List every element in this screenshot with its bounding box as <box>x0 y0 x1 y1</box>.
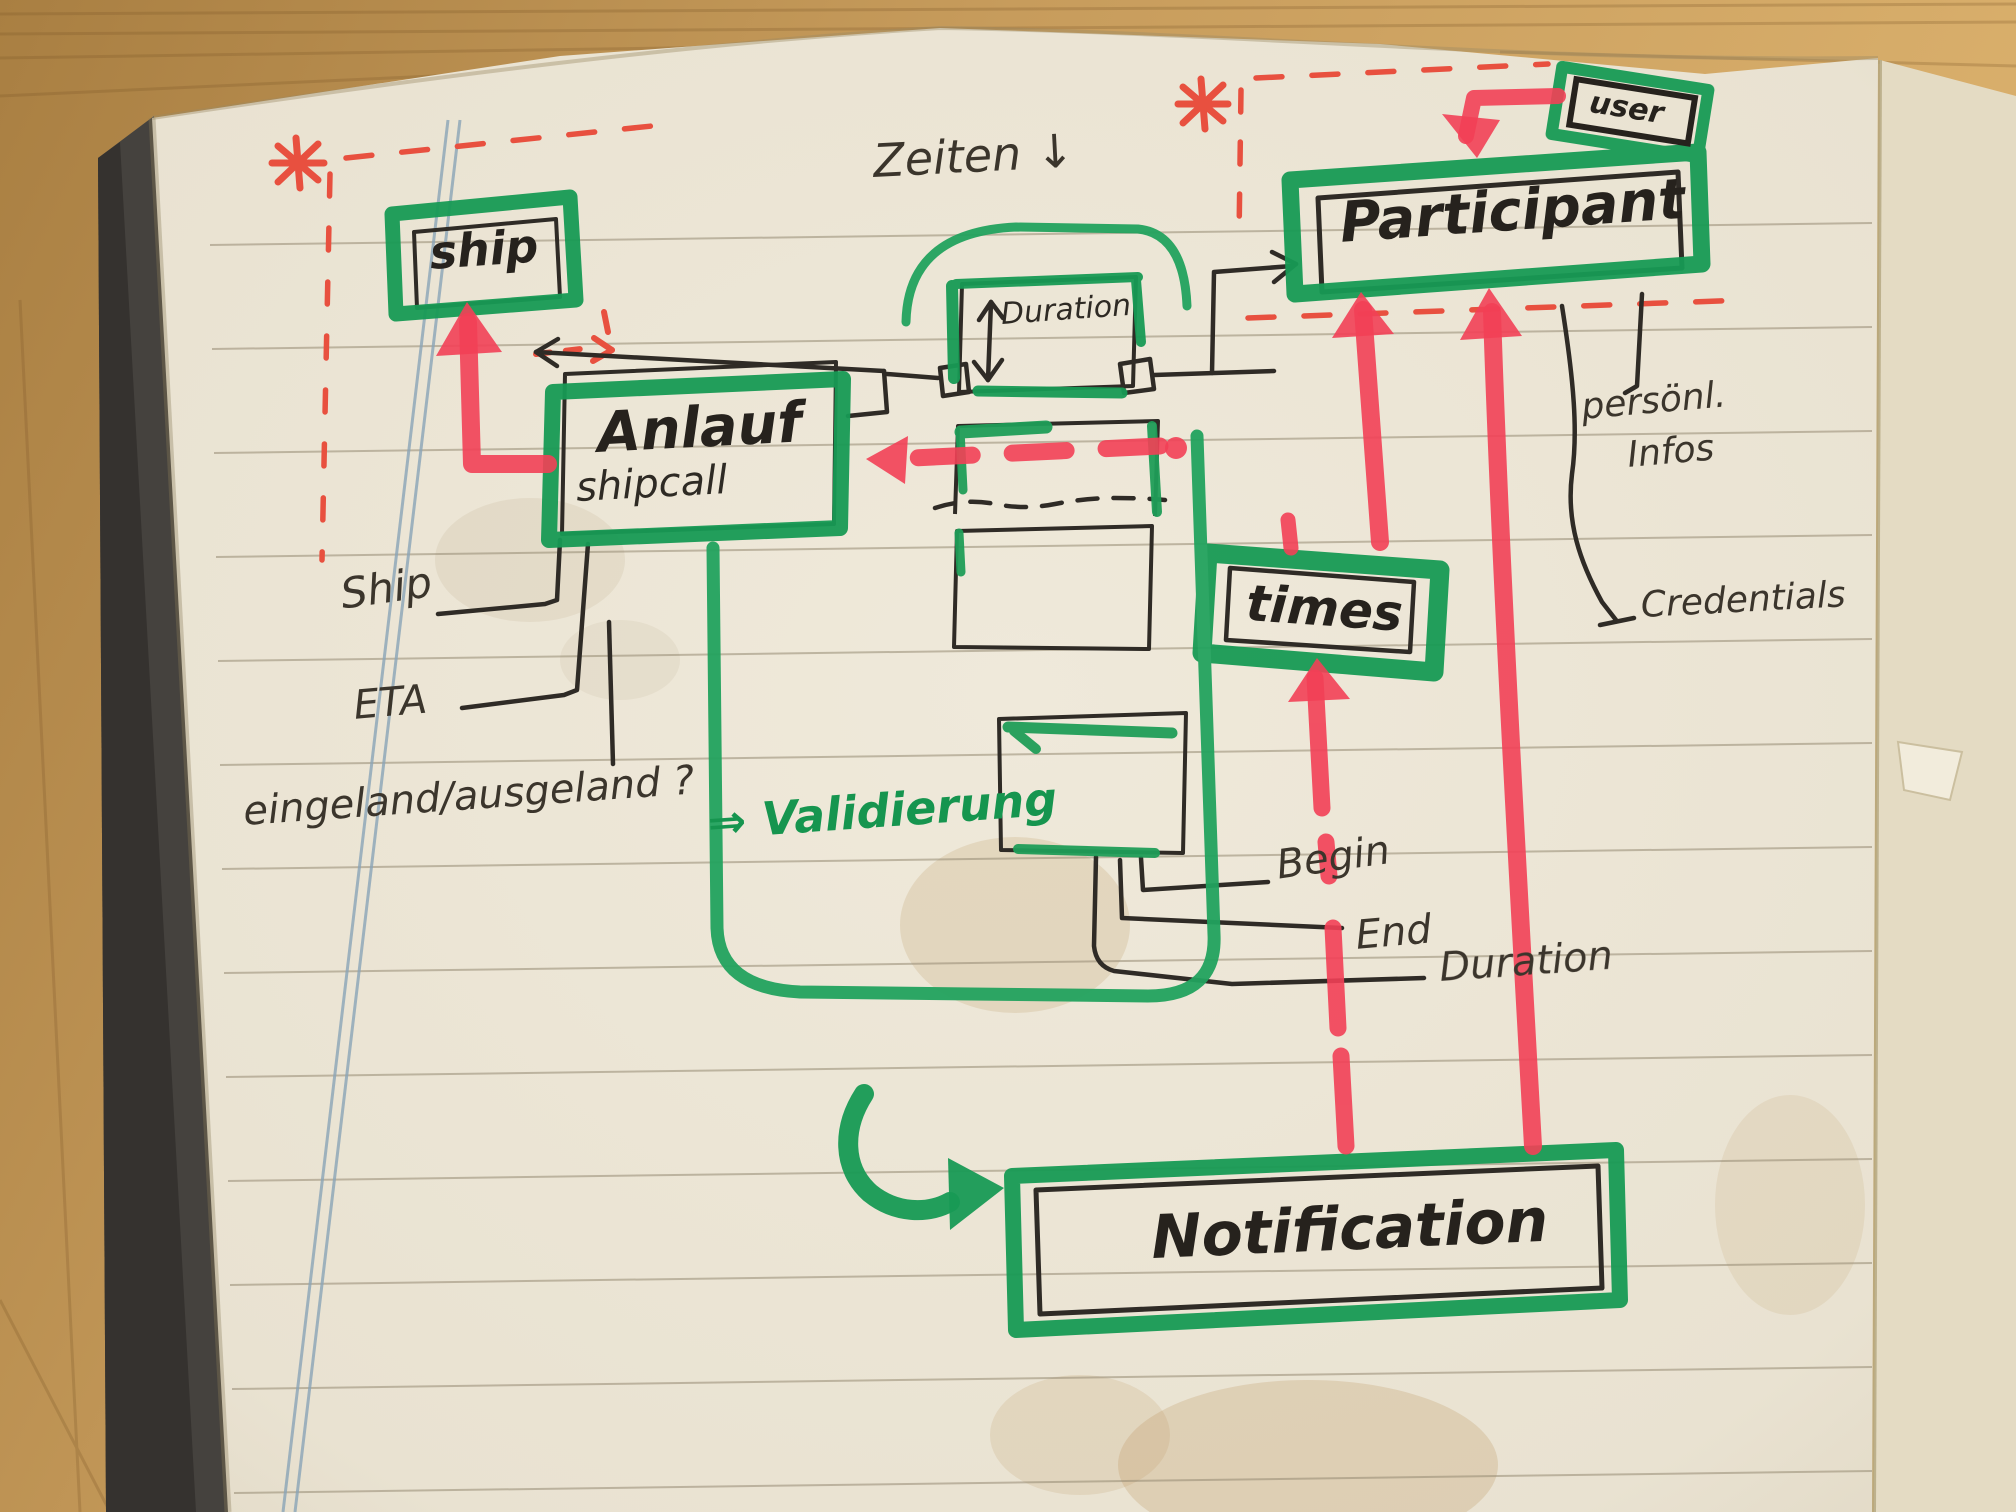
second-page-edge <box>1874 60 2016 1512</box>
end-attribute-label: End <box>1354 909 1433 955</box>
personal-infos-label-line2: Infos <box>1626 430 1716 473</box>
asterisk-icon-left <box>272 138 324 188</box>
ship-box-label: ship <box>428 222 540 275</box>
asterisk-icon-right <box>1178 79 1228 129</box>
diagram-canvas <box>0 0 2016 1512</box>
notebook-photo: ship Anlauf shipcall Duration times Part… <box>0 0 2016 1512</box>
duration-box-label: Duration <box>1000 291 1132 330</box>
notification-box-label: Notification <box>1150 1191 1549 1268</box>
ship-attribute-label: Ship <box>338 561 435 615</box>
duration-attribute-label: Duration <box>1438 936 1614 988</box>
zeiten-annotation: Zeiten ↓ <box>872 127 1075 183</box>
eta-attribute-label: ETA <box>352 680 429 726</box>
times-box-label: times <box>1245 578 1405 639</box>
shipcall-box-label: shipcall <box>575 460 728 508</box>
red-dot <box>1165 437 1187 459</box>
anlauf-box-label: Anlauf <box>596 395 803 462</box>
